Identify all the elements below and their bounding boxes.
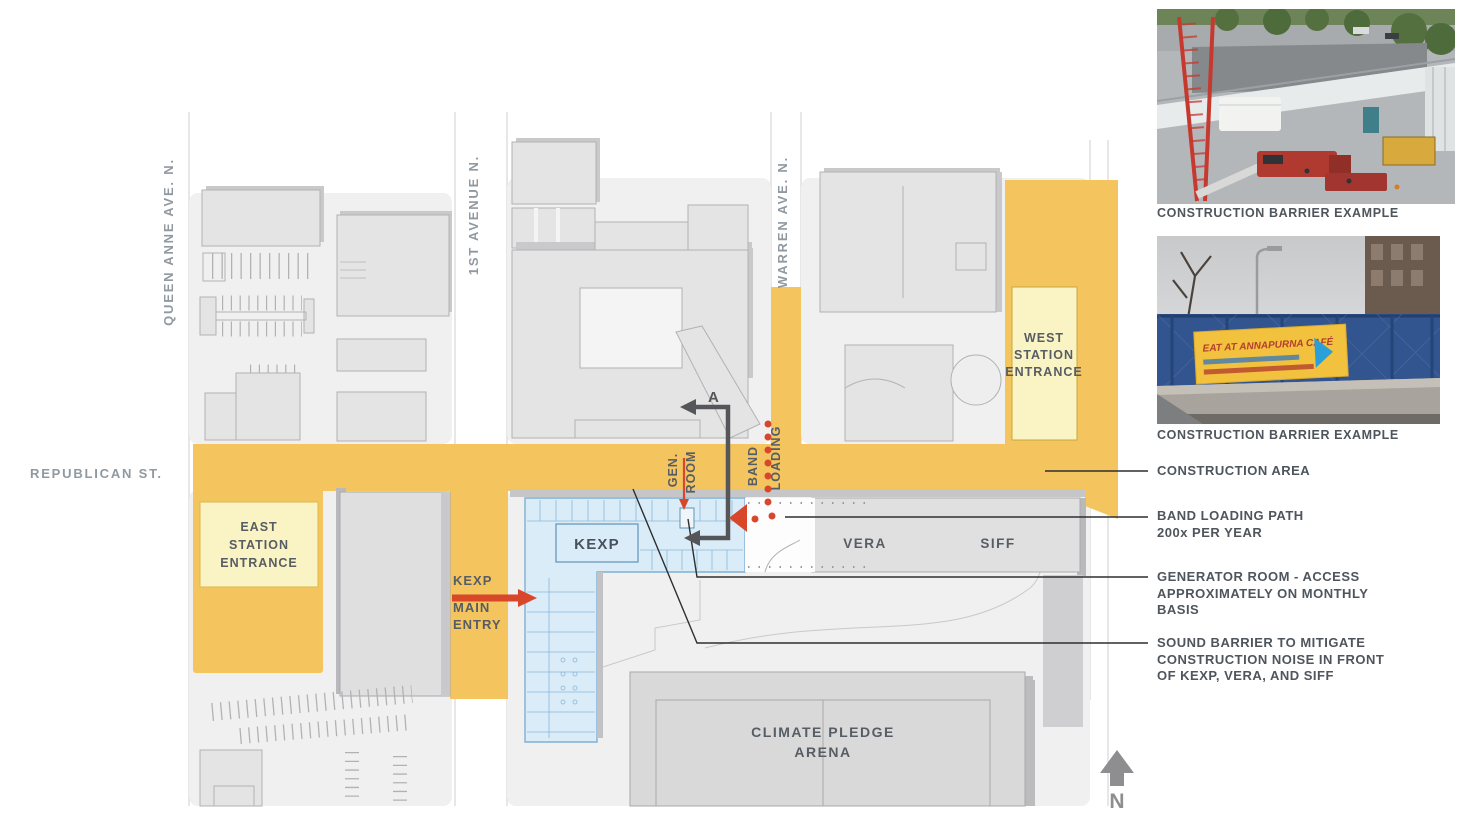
legend-construction-area-line1: CONSTRUCTION AREA <box>1157 463 1310 480</box>
west-station-line2: STATION <box>1014 348 1074 362</box>
barrier-fence-photo-art: EAT AT ANNAPURNA CAFÉ <box>1157 236 1440 424</box>
east-station-line3: ENTRANCE <box>220 556 297 570</box>
curb-strip <box>510 489 1085 497</box>
street-label-first-avenue: 1ST AVENUE N. <box>466 155 481 275</box>
legend-band-loading-line2: 200x PER YEAR <box>1157 525 1304 542</box>
construction-site-photo <box>1157 9 1455 204</box>
west-station-entrance-box <box>1012 287 1077 440</box>
east-station-line2: STATION <box>229 538 289 552</box>
east-station-line1: EAST <box>240 520 277 534</box>
legend-sound-barrier: SOUND BARRIER TO MITIGATE CONSTRUCTION N… <box>1157 635 1384 685</box>
vera-label: VERA <box>843 536 887 551</box>
kexp-entry-line3: ENTRY <box>453 617 502 632</box>
legend-generator-room-line2: APPROXIMATELY ON MONTHLY <box>1157 586 1368 603</box>
street-label-warren: WARREN AVE. N. <box>775 156 790 288</box>
construction-site-photo-art <box>1157 9 1455 204</box>
photo1-caption: CONSTRUCTION BARRIER EXAMPLE <box>1157 206 1399 220</box>
route-a-label: A <box>708 389 719 406</box>
barrier-fence-photo: EAT AT ANNAPURNA CAFÉ <box>1157 236 1440 424</box>
street-label-queen-anne: QUEEN ANNE AVE. N. <box>161 158 176 326</box>
band-loading-line1: BAND <box>746 446 760 486</box>
photo2-caption: CONSTRUCTION BARRIER EXAMPLE <box>1157 428 1399 442</box>
north-label: N <box>1109 790 1124 813</box>
legend-generator-room: GENERATOR ROOM - ACCESS APPROXIMATELY ON… <box>1157 569 1368 619</box>
kexp-label: KEXP <box>574 536 620 553</box>
legend-construction-area: CONSTRUCTION AREA <box>1157 463 1310 480</box>
band-loading-line2: LOADING <box>769 426 783 491</box>
legend-band-loading-line1: BAND LOADING PATH <box>1157 508 1304 525</box>
site-plan-page: N QUEEN ANNE AVE. N. 1ST AVENUE N. WARRE… <box>0 0 1461 824</box>
kexp-entry-line2: MAIN <box>453 600 490 615</box>
arena-label-line1: CLIMATE PLEDGE <box>751 724 895 740</box>
west-station-line1: WEST <box>1024 331 1064 345</box>
west-station-line3: ENTRANCE <box>1005 365 1082 379</box>
legend-band-loading: BAND LOADING PATH 200x PER YEAR <box>1157 508 1304 541</box>
legend-sound-barrier-line3: OF KEXP, VERA, AND SIFF <box>1157 668 1384 685</box>
gen-room-line1: GEN. <box>666 453 680 488</box>
north-arrow: N <box>1100 750 1134 813</box>
east-strip-building <box>1043 575 1083 727</box>
legend-generator-room-line3: BASIS <box>1157 602 1368 619</box>
gen-room-line2: ROOM <box>684 451 698 494</box>
kexp-entry-line1: KEXP <box>453 573 492 588</box>
banner: EAT AT ANNAPURNA CAFÉ <box>1194 324 1349 384</box>
legend-sound-barrier-line2: CONSTRUCTION NOISE IN FRONT <box>1157 652 1384 669</box>
legend-generator-room-line1: GENERATOR ROOM - ACCESS <box>1157 569 1368 586</box>
block-c-buildings <box>820 168 1002 441</box>
siff-label: SIFF <box>980 536 1015 551</box>
legend-sound-barrier-line1: SOUND BARRIER TO MITIGATE <box>1157 635 1384 652</box>
street-label-republican: REPUBLICAN ST. <box>30 466 163 481</box>
arena-label-line2: ARENA <box>794 744 851 760</box>
